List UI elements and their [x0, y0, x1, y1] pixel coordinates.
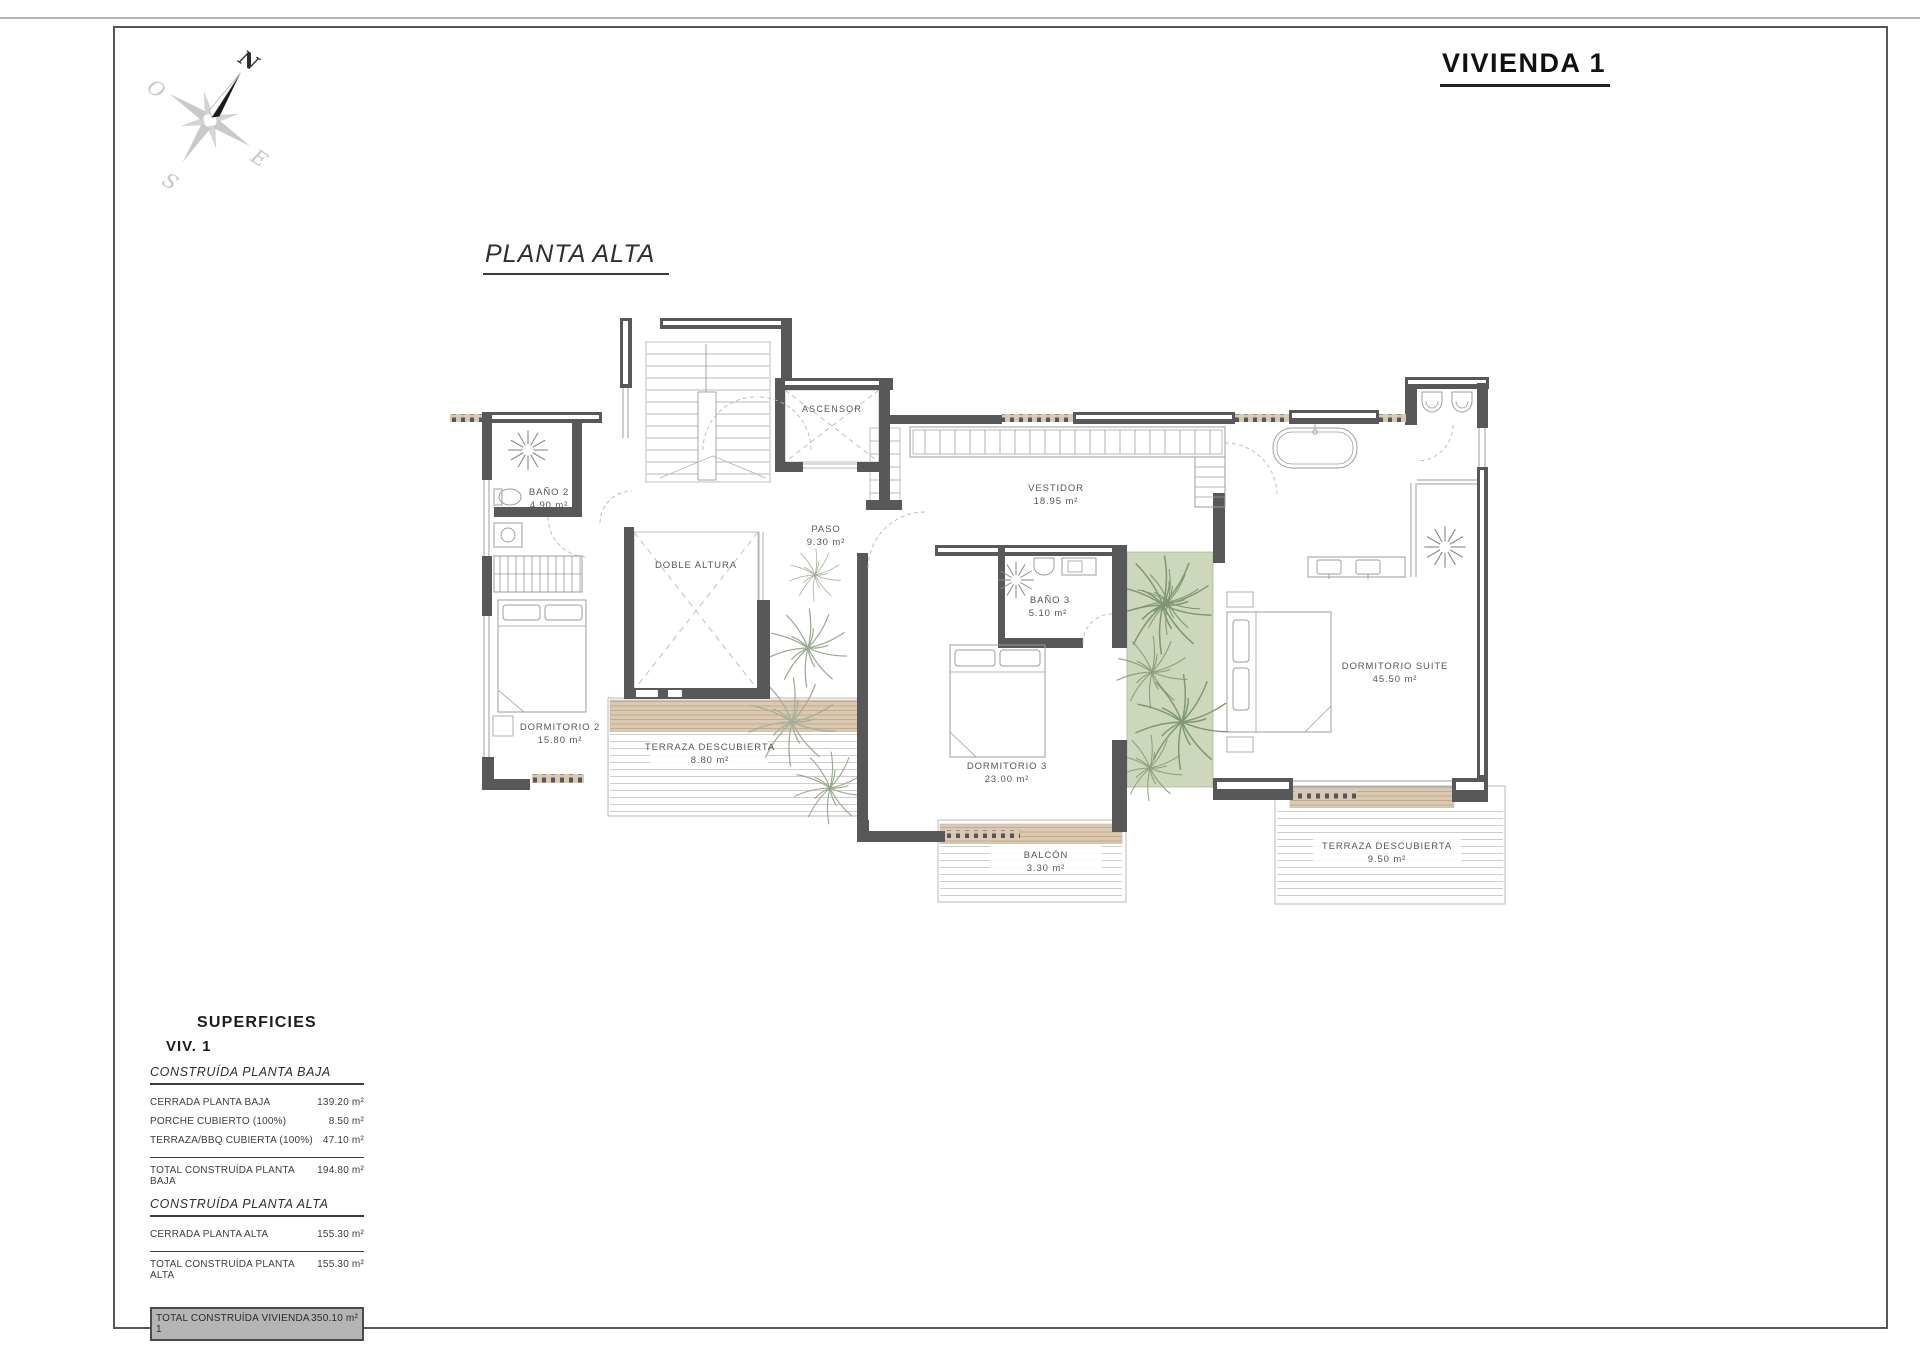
- surface-row-value: 155.30 m²: [317, 1259, 364, 1281]
- surface-row-value: 194.80 m²: [317, 1165, 364, 1187]
- surface-row-value: 155.30 m²: [317, 1229, 364, 1240]
- svg-text:5.10 m²: 5.10 m²: [1029, 608, 1068, 619]
- bathroom3-fixtures: [998, 558, 1096, 598]
- section-title-planta-alta: CONSTRUÍDA PLANTA ALTA: [150, 1197, 364, 1217]
- surface-total-row: TOTAL CONSTRUÍDA PLANTA ALTA 155.30 m²: [150, 1251, 364, 1281]
- surface-row-label: CERRADA PLANTA BAJA: [150, 1097, 270, 1108]
- room-label-paso: PASO 9.30 m²: [807, 524, 846, 548]
- surface-row-value: 47.10 m²: [323, 1135, 364, 1146]
- suite-bath-fixtures: [1308, 483, 1466, 579]
- wc-room-fixtures: [1417, 392, 1477, 484]
- surfaces-subheading: VIV. 1: [166, 1038, 364, 1055]
- svg-text:DOBLE ALTURA: DOBLE ALTURA: [655, 560, 737, 571]
- svg-text:BAÑO 2: BAÑO 2: [529, 487, 569, 498]
- surfaces-table: SUPERFICIES VIV. 1 CONSTRUÍDA PLANTA BAJ…: [150, 1014, 364, 1341]
- svg-text:23.00 m²: 23.00 m²: [985, 774, 1030, 785]
- surface-row: TERRAZA/BBQ CUBIERTA (100%) 47.10 m²: [150, 1135, 364, 1146]
- section-title-planta-baja: CONSTRUÍDA PLANTA BAJA: [150, 1065, 364, 1085]
- svg-text:DORMITORIO 3: DORMITORIO 3: [967, 761, 1047, 772]
- svg-text:VESTIDOR: VESTIDOR: [1028, 483, 1084, 494]
- svg-text:BAÑO 3: BAÑO 3: [1030, 595, 1070, 606]
- surface-row: CERRADA PLANTA BAJA 139.20 m²: [150, 1097, 364, 1108]
- bed-suite: [1227, 592, 1331, 752]
- svg-text:15.80 m²: 15.80 m²: [538, 735, 583, 746]
- bed-dormitorio2: [493, 600, 586, 736]
- room-label-bano2: BAÑO 2 4.90 m²: [529, 487, 569, 511]
- room-label-dormitorio3: DORMITORIO 3 23.00 m²: [967, 761, 1047, 785]
- svg-text:3.30 m²: 3.30 m²: [1027, 863, 1066, 874]
- svg-text:BALCÓN: BALCÓN: [1024, 850, 1068, 861]
- svg-text:PASO: PASO: [811, 524, 840, 535]
- svg-text:DORMITORIO 2: DORMITORIO 2: [520, 722, 600, 733]
- svg-text:DORMITORIO SUITE: DORMITORIO SUITE: [1342, 661, 1449, 672]
- sheet: N O E S VIVIENDA 1 PLANTA ALTA: [0, 0, 1920, 1357]
- room-label-ascensor: ASCENSOR: [802, 404, 862, 414]
- surface-total-row: TOTAL CONSTRUÍDA PLANTA BAJA 194.80 m²: [150, 1157, 364, 1187]
- svg-text:9.50 m²: 9.50 m²: [1368, 854, 1407, 865]
- surface-row-label: TERRAZA/BBQ CUBIERTA (100%): [150, 1135, 313, 1146]
- surface-row: CERRADA PLANTA ALTA 155.30 m²: [150, 1229, 364, 1240]
- grand-total-row: TOTAL CONSTRUÍDA VIVIENDA 1 350.10 m²: [150, 1307, 364, 1341]
- svg-text:TERRAZA DESCUBIERTA: TERRAZA DESCUBIERTA: [645, 742, 775, 753]
- svg-text:9.30 m²: 9.30 m²: [807, 537, 846, 548]
- room-label-vestidor: VESTIDOR 18.95 m²: [1028, 483, 1084, 507]
- svg-text:8.80 m²: 8.80 m²: [691, 755, 730, 766]
- grand-total-value: 350.10 m²: [311, 1313, 358, 1335]
- patio-green: [1114, 552, 1229, 801]
- surface-row-value: 8.50 m²: [329, 1116, 364, 1127]
- surface-row: PORCHE CUBIERTO (100%) 8.50 m²: [150, 1116, 364, 1127]
- room-label-dormitorio-suite: DORMITORIO SUITE 45.50 m²: [1342, 661, 1449, 685]
- surface-row-value: 139.20 m²: [317, 1097, 364, 1108]
- surface-row-label: TOTAL CONSTRUÍDA PLANTA ALTA: [150, 1259, 317, 1281]
- balcony: [938, 820, 1126, 902]
- surface-row-label: PORCHE CUBIERTO (100%): [150, 1116, 286, 1127]
- bed-dormitorio3: [950, 645, 1045, 757]
- bathtub: [1273, 424, 1357, 468]
- svg-text:ASCENSOR: ASCENSOR: [802, 404, 862, 414]
- wardrobe-dormitorio2: [494, 556, 582, 592]
- svg-text:TERRAZA DESCUBIERTA: TERRAZA DESCUBIERTA: [1322, 841, 1452, 852]
- surface-row-label: CERRADA PLANTA ALTA: [150, 1229, 268, 1240]
- wardrobe-vestidor: [910, 427, 1225, 507]
- svg-text:4.90 m²: 4.90 m²: [530, 500, 569, 511]
- grand-total-label: TOTAL CONSTRUÍDA VIVIENDA 1: [156, 1313, 311, 1335]
- room-label-dormitorio2: DORMITORIO 2 15.80 m²: [520, 722, 600, 746]
- surfaces-heading: SUPERFICIES: [150, 1014, 364, 1032]
- surface-row-label: TOTAL CONSTRUÍDA PLANTA BAJA: [150, 1165, 317, 1187]
- svg-text:45.50 m²: 45.50 m²: [1373, 674, 1418, 685]
- room-label-doble-altura: DOBLE ALTURA: [655, 560, 737, 571]
- elevator: [785, 390, 879, 468]
- room-label-bano3: BAÑO 3 5.10 m²: [1029, 595, 1070, 619]
- stairs: [646, 342, 770, 482]
- double-height-void: [634, 532, 763, 690]
- svg-text:18.95 m²: 18.95 m²: [1034, 496, 1079, 507]
